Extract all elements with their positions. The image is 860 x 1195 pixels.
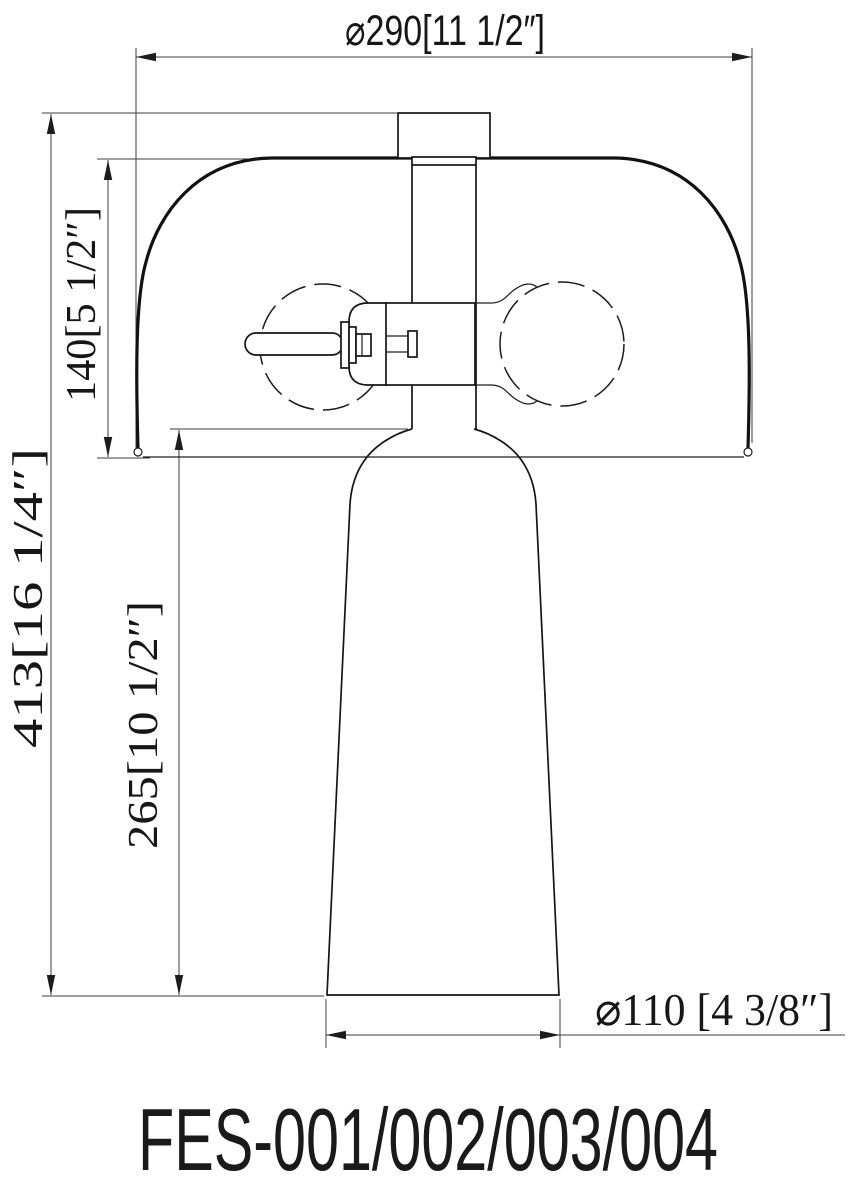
right-bulb-neck-bottom (475, 385, 537, 404)
rod-flange-inner (349, 327, 356, 363)
right-bulb-neck-top (475, 284, 537, 303)
drawing-sheet: ⌀290[11 1/2″] 413[16 1/4″] 140[5 1/2″] 2… (0, 0, 860, 1195)
right-bulb-globe (500, 282, 624, 406)
base-outline (327, 429, 559, 995)
lamp-technical-drawing: ⌀290[11 1/2″] 413[16 1/4″] 140[5 1/2″] 2… (0, 0, 860, 1195)
overall-height-label: 413[16 1/4″] (6, 448, 52, 748)
neck-ring (412, 157, 476, 165)
socket-slot-cap (408, 331, 417, 357)
dimension-lines (51, 57, 752, 1035)
rim-bead-right (744, 448, 752, 456)
shade-height-label: 140[5 1/2″] (59, 207, 105, 402)
finial-cap (398, 113, 490, 158)
socket-body (386, 303, 475, 385)
body-height-label: 265[10 1/2″] (121, 601, 167, 849)
switch-rod (245, 333, 343, 355)
rim-bead-left (134, 448, 142, 456)
shade-diameter-label: ⌀290[11 1/2″] (345, 7, 545, 55)
socket-assembly (245, 303, 475, 385)
product-code-title: FES-001/002/003/004 (138, 1090, 718, 1189)
cap-group (398, 113, 490, 165)
rod-flange-outer (341, 322, 349, 368)
set-screw (356, 334, 371, 356)
extension-lines (42, 48, 845, 1048)
center-stem (412, 165, 476, 429)
base-diameter-label: ⌀110 [4 3/8″] (595, 984, 833, 1035)
